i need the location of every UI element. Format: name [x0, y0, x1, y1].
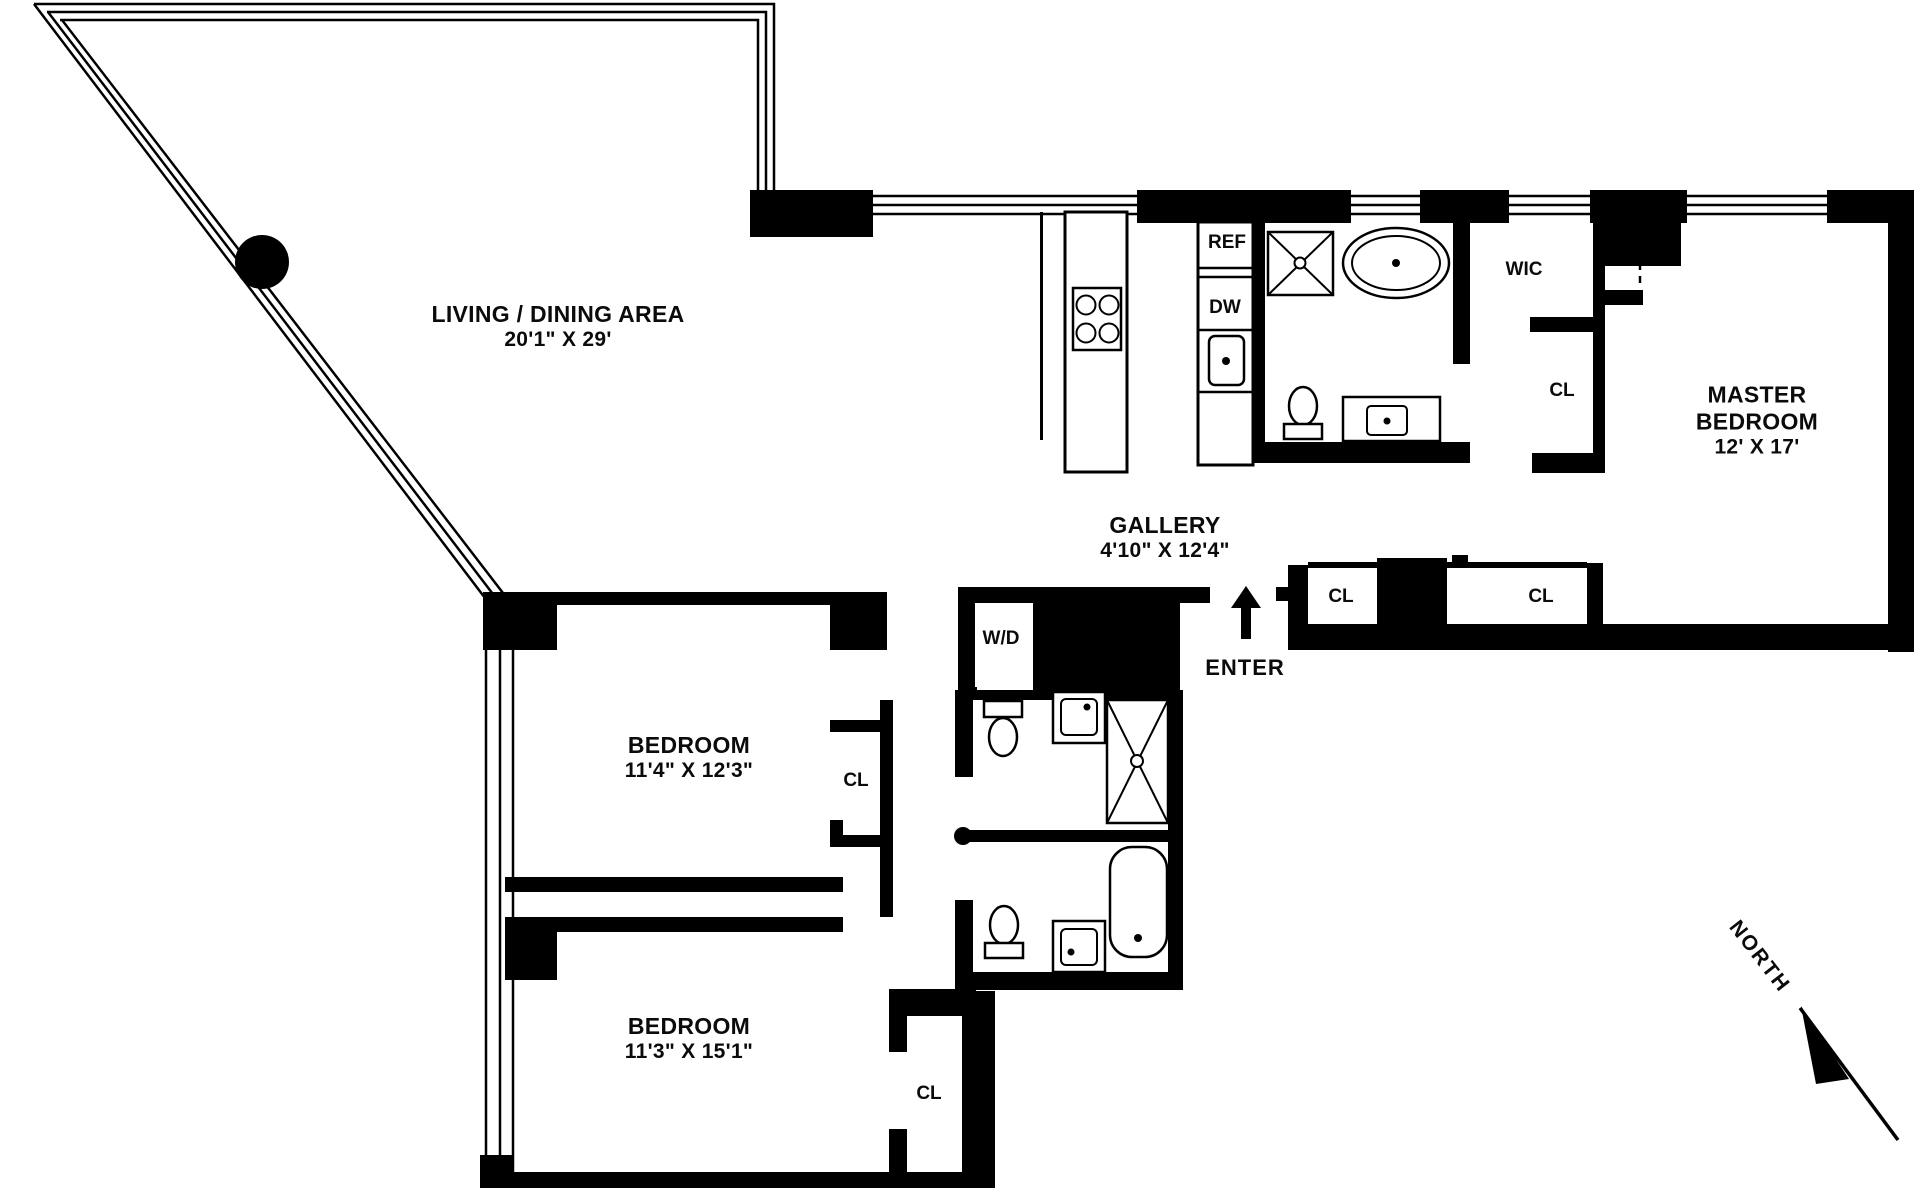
room-name: BEDROOM [625, 1013, 753, 1040]
room-dimensions: 12' X 17' [1696, 436, 1818, 461]
closet-label-hall-cl-2: CL [1528, 586, 1553, 608]
closet-label-wic: WIC [1506, 259, 1543, 281]
kitchen-island-icon [1065, 212, 1127, 472]
room-dimensions: 4'10" X 12'4" [1100, 539, 1230, 564]
kitchen-counter-icon [1198, 222, 1253, 465]
room-dimensions: 20'1" X 29' [431, 328, 684, 353]
room-name: BEDROOM [1696, 409, 1818, 436]
vanity-sink-icon [1343, 397, 1440, 441]
entry-label: ENTER [1205, 655, 1285, 681]
floor-plan: LIVING / DINING AREA 20'1" X 29' GALLERY… [0, 0, 1920, 1200]
room-dimensions: 11'3" X 15'1" [625, 1040, 753, 1065]
sink-icon [1053, 921, 1105, 972]
bathtub-icon [1110, 847, 1167, 957]
kitchen-sink-icon [1209, 336, 1244, 385]
room-name: LIVING / DINING AREA [431, 301, 684, 328]
bathroom-2 [985, 847, 1167, 972]
toilet-icon [985, 906, 1023, 958]
master-bath [1268, 228, 1449, 441]
enter-arrow-icon [1231, 586, 1261, 639]
closet-label-hall-cl-1: CL [1328, 586, 1353, 608]
room-label-master-bedroom: MASTER BEDROOM 12' X 17' [1696, 381, 1818, 460]
room-label-bedroom-1: BEDROOM 11'4" X 12'3" [625, 732, 753, 784]
appliance-label-dishwasher: DW [1209, 297, 1241, 319]
column-icon [235, 235, 289, 289]
north-arrow-icon [1800, 1006, 1898, 1140]
closet-label-master-cl: CL [1549, 380, 1574, 402]
room-label-bedroom-2: BEDROOM 11'3" X 15'1" [625, 1013, 753, 1065]
shower-icon [1268, 232, 1333, 295]
toilet-icon [984, 701, 1022, 756]
appliance-label-refrigerator: REF [1208, 232, 1246, 254]
room-name: GALLERY [1100, 512, 1230, 539]
closet-label-bedroom-1-cl: CL [843, 770, 868, 792]
room-dimensions: 11'4" X 12'3" [625, 759, 753, 784]
appliance-label-washer-dryer: W/D [983, 628, 1020, 650]
room-name: MASTER [1696, 381, 1818, 408]
bathroom-1 [984, 692, 1168, 823]
shower-icon [1107, 700, 1168, 823]
toilet-icon [1284, 387, 1322, 439]
room-label-living-dining: LIVING / DINING AREA 20'1" X 29' [431, 301, 684, 353]
oval-bathtub-icon [1343, 228, 1449, 298]
sink-icon [1053, 692, 1105, 743]
room-name: BEDROOM [625, 732, 753, 759]
floor-plan-drawing [0, 0, 1920, 1200]
room-label-gallery: GALLERY 4'10" X 12'4" [1100, 512, 1230, 564]
closet-label-bedroom-2-cl: CL [916, 1083, 941, 1105]
